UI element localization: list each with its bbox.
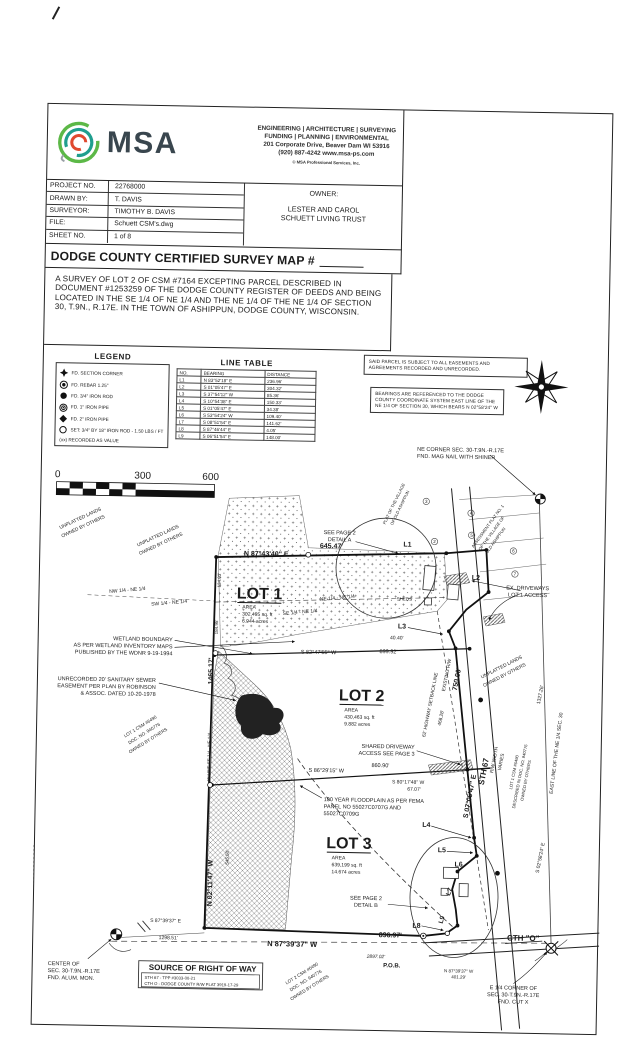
map-label: 0 xyxy=(55,469,61,480)
project-info-table: PROJECT NO.22768000DRAWN BY:T. DAVISSURV… xyxy=(46,180,245,246)
map-label: L2 xyxy=(472,575,480,582)
section-corner-icon xyxy=(59,369,68,378)
rebar-icon xyxy=(59,380,68,389)
map-label: EASEMENT PER PLAN BY ROBINSON xyxy=(57,683,156,691)
document-title: DODGE COUNTY CERTIFIED SURVEY MAP # xyxy=(51,248,315,267)
map-label: 6 xyxy=(512,548,515,553)
map-label: 3 xyxy=(425,499,428,504)
map-label: SEC. 30-T.9N.-R.17E xyxy=(487,992,540,999)
map-label: L4 xyxy=(422,822,430,829)
map-label: ACCESS SEE PAGE 3 xyxy=(358,751,414,758)
map-label: 40.40' xyxy=(390,635,404,641)
survey-map: 0300600NE CORNER SEC. 30-T.9N.-R.17EFND.… xyxy=(32,432,609,1034)
map-label: 6.944 acres xyxy=(242,619,269,625)
row-label: PROJECT NO. xyxy=(47,180,109,193)
survey-description: A SURVEY OF LOT 2 OF CSM #7164 EXCEPTING… xyxy=(44,268,392,351)
legend-item-label: FD. 1" IRON PIPE xyxy=(71,405,109,411)
map-label: 1465.17' xyxy=(208,657,215,684)
map-label: 750.00' xyxy=(452,667,463,691)
map-label: 67.07' xyxy=(407,787,421,793)
map-label: N 02°11'47" W xyxy=(206,859,215,906)
map-label: N 87°39'37" W xyxy=(267,939,318,949)
legend-item: FD. 3/4" IRON ROD xyxy=(59,391,166,402)
row-value: TIMOTHY B. DAVIS xyxy=(108,208,175,216)
map-label: STH 67 - TPP #3033-00-21 xyxy=(144,975,196,981)
map-label: S 87°39'37" E xyxy=(150,918,182,925)
row-value: Schuett CSM's.dwg xyxy=(108,220,173,228)
wetland-blob xyxy=(235,694,284,740)
company-copyright: © MSA Professional Services, Inc. xyxy=(257,158,396,169)
map-label: SEE PAGE 2 xyxy=(350,896,382,903)
map-label: 1298.51' xyxy=(159,935,178,941)
map-label: CTH O - DODGE COUNTY R/W PLAT 3919-17-29 xyxy=(144,981,239,988)
map-label: L9 xyxy=(438,915,447,925)
map-label: 899.92' xyxy=(379,649,397,655)
map-label: 430,463 sq. ft xyxy=(344,714,375,721)
map-label: STH 67 xyxy=(477,757,491,786)
legend-item: FD. REBAR 1.25" xyxy=(59,380,166,391)
map-label: 468.28' xyxy=(437,710,446,727)
survey-sheet: MSA ENGINEERING | ARCHITECTURE | SURVEYI… xyxy=(31,103,614,1035)
legend-item: FD. 1" IRON PIPE xyxy=(59,403,166,414)
map-label: 860.90' xyxy=(371,763,389,769)
row-label: DRAWN BY: xyxy=(47,192,109,205)
owner-label: OWNER: xyxy=(245,189,403,201)
map-label: N 87°43'40" E xyxy=(244,550,289,559)
map-label: L8 xyxy=(412,923,420,930)
map-label: SHARED DRIVEWAY xyxy=(362,744,416,751)
ne-corner-symbol xyxy=(535,494,545,504)
scan-artifact xyxy=(52,6,60,19)
map-label: AREA xyxy=(242,605,256,611)
map-label: L1 xyxy=(403,541,411,548)
page: { "header": { "logo_text": "MSA", "servi… xyxy=(0,0,640,1055)
map-label: WETLAND BOUNDARY xyxy=(113,636,173,643)
map-label: 62' HIGHWAY SETBACK LINE xyxy=(421,672,439,738)
map-label: S 86°29'15" W xyxy=(309,768,345,775)
map-label: CENTER OF xyxy=(48,961,81,968)
map-label: SEC. 30-T.9N.-R.17E xyxy=(48,968,101,975)
note-bearings: BEARINGS ARE REFERENCED TO THE DODGE COU… xyxy=(370,387,504,416)
owner-box: OWNER: LESTER AND CAROL SCHUETT LIVING T… xyxy=(244,184,403,249)
iron-rod-icon xyxy=(59,391,68,400)
map-label: AREA xyxy=(332,855,346,861)
map-label: 302,495 sq. ft xyxy=(242,612,273,619)
map-label: L3 xyxy=(398,623,406,630)
map-label: CTH "O" xyxy=(507,933,540,943)
map-label: L6 xyxy=(454,861,462,868)
legend-item-label: FD. REBAR 1.25" xyxy=(71,382,108,388)
logo-row: MSA ENGINEERING | ARCHITECTURE | SURVEYI… xyxy=(47,104,403,186)
map-label: 896.97' xyxy=(379,932,403,939)
map-label: SEE PAGE 2 xyxy=(324,530,356,537)
csm-number-blank xyxy=(320,254,364,267)
map-label: 401.29' xyxy=(451,974,466,979)
line-table-grid: NO.BEARINGDISTANCE L1N 83°52'18" E236.96… xyxy=(175,368,316,442)
legend-item-label: FD. SECTION CORNER xyxy=(71,371,122,377)
line-table: LINE TABLE NO.BEARINGDISTANCE L1N 83°52'… xyxy=(175,357,316,442)
map-label: 14.674 acres xyxy=(331,869,361,876)
note-easements: SAID PARCEL IS SUBJECT TO ALL EASEMENTS … xyxy=(364,355,528,378)
legend-item: FD. SECTION CORNER xyxy=(59,369,166,380)
map-label: S 82°47'55" W xyxy=(301,650,337,657)
map-label: LOT 1 ACCESS xyxy=(508,592,547,599)
map-label: 2897.02' xyxy=(366,954,386,960)
map-label: 9.882 acres xyxy=(344,721,371,727)
map-label: SW 1/4 - NE 1/4 xyxy=(151,599,188,608)
map-label: 5 xyxy=(470,533,473,538)
map-label: 300 xyxy=(134,471,151,482)
map-label: PUBLISHED BY THE WDNR 9-19-1994 xyxy=(75,649,173,657)
map-label: 600 xyxy=(202,472,219,483)
map-label: W LINE SE 1/4 - NE 1/4 xyxy=(206,732,212,781)
map-label: AREA xyxy=(344,707,358,713)
map-label: 134.03' xyxy=(217,573,222,588)
map-label: NW 1/4 - NE 1/4 xyxy=(109,586,146,595)
legend-item-label: FD. 2" IRON PIPE xyxy=(71,416,109,422)
map-label: EX. DRIVEWAYS xyxy=(506,585,549,592)
scale-bar xyxy=(56,482,214,498)
map-label: LOT 1 xyxy=(237,585,283,603)
map-label: EXISTING R/W xyxy=(441,658,453,692)
map-label: S 80°17'48" W xyxy=(392,779,425,786)
msa-logo-icon xyxy=(55,119,102,166)
map-label: LOT 3 xyxy=(326,835,372,853)
map-label: 639,199 sq. ft xyxy=(332,862,363,869)
company-contact: ENGINEERING | ARCHITECTURE | SURVEYING F… xyxy=(257,125,399,169)
map-label: LOT 2 xyxy=(339,687,385,705)
map-label: P.O.B. xyxy=(383,963,401,969)
legend-title: LEGEND xyxy=(56,351,170,362)
map-label: E 1/4 CORNER OF xyxy=(490,985,538,992)
map-label: 2 xyxy=(433,539,436,544)
map-label: 7 xyxy=(514,572,517,577)
north-arrow-icon xyxy=(513,358,570,417)
map-label: 545.50' xyxy=(225,850,230,865)
map-label: SHEDS xyxy=(397,596,413,601)
row-value: 22768000 xyxy=(109,183,145,191)
row-label: FILE: xyxy=(46,217,108,230)
map-label: FND. ALUM. MON. xyxy=(47,975,94,982)
map-label: S 02°58'24" E xyxy=(535,842,547,874)
legend-item: FD. 2" IRON PIPE xyxy=(59,414,166,425)
map-label: FND. CUT X xyxy=(498,999,529,1006)
iron-pipe-1-icon xyxy=(59,403,68,412)
row-value: T. DAVIS xyxy=(109,196,142,204)
legend-item-label: FD. 3/4" IRON ROD xyxy=(71,393,113,399)
owner-line2: SCHUETT LIVING TRUST xyxy=(244,213,402,225)
row-value: 1 of 8 xyxy=(108,233,131,240)
map-label: N 87°39'37" W xyxy=(444,968,474,974)
map-label: 184.95' xyxy=(214,620,219,635)
msa-logo-text: MSA xyxy=(106,125,178,160)
row-label: SHEET NO. xyxy=(46,229,108,243)
map-label: SOURCE OF RIGHT OF WAY xyxy=(149,963,258,974)
title-block-row: SHEET NO.1 of 8 xyxy=(46,229,243,245)
map-label: 645.47' xyxy=(320,543,344,550)
map-label: DETAIL B xyxy=(354,903,378,909)
row-label: SURVEYOR: xyxy=(46,205,108,218)
title-block: MSA ENGINEERING | ARCHITECTURE | SURVEYI… xyxy=(46,104,405,251)
map-label: & ASSOC. DATED 10-20-1978 xyxy=(81,691,156,698)
map-label: L5 xyxy=(438,847,446,854)
map-label: 55027C0709G xyxy=(323,811,359,818)
iron-pipe-2-icon xyxy=(59,414,68,423)
map-label: EAST LINE OF THE NE 1/4 SEC. 30 xyxy=(549,712,565,794)
map-label: FND. MAG NAIL WITH SHINER xyxy=(417,454,495,461)
line-table-title: LINE TABLE xyxy=(177,357,317,369)
